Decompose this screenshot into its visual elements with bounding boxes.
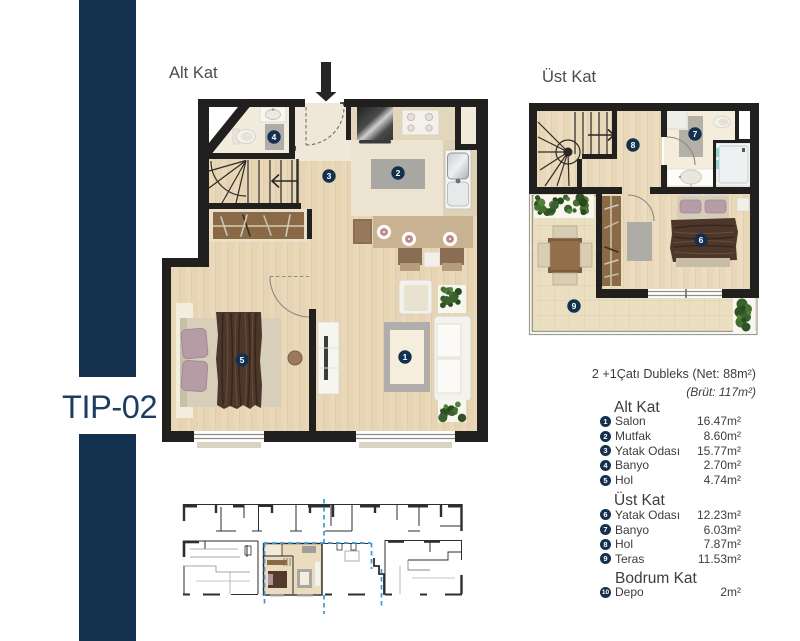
svg-text:3: 3: [327, 171, 332, 181]
svg-text:6: 6: [699, 235, 704, 245]
svg-text:2: 2: [396, 168, 401, 178]
svg-text:7: 7: [693, 129, 698, 139]
svg-text:1: 1: [403, 352, 408, 362]
svg-text:5: 5: [240, 355, 245, 365]
svg-text:4: 4: [272, 132, 277, 142]
svg-text:9: 9: [572, 301, 577, 311]
svg-text:8: 8: [631, 140, 636, 150]
